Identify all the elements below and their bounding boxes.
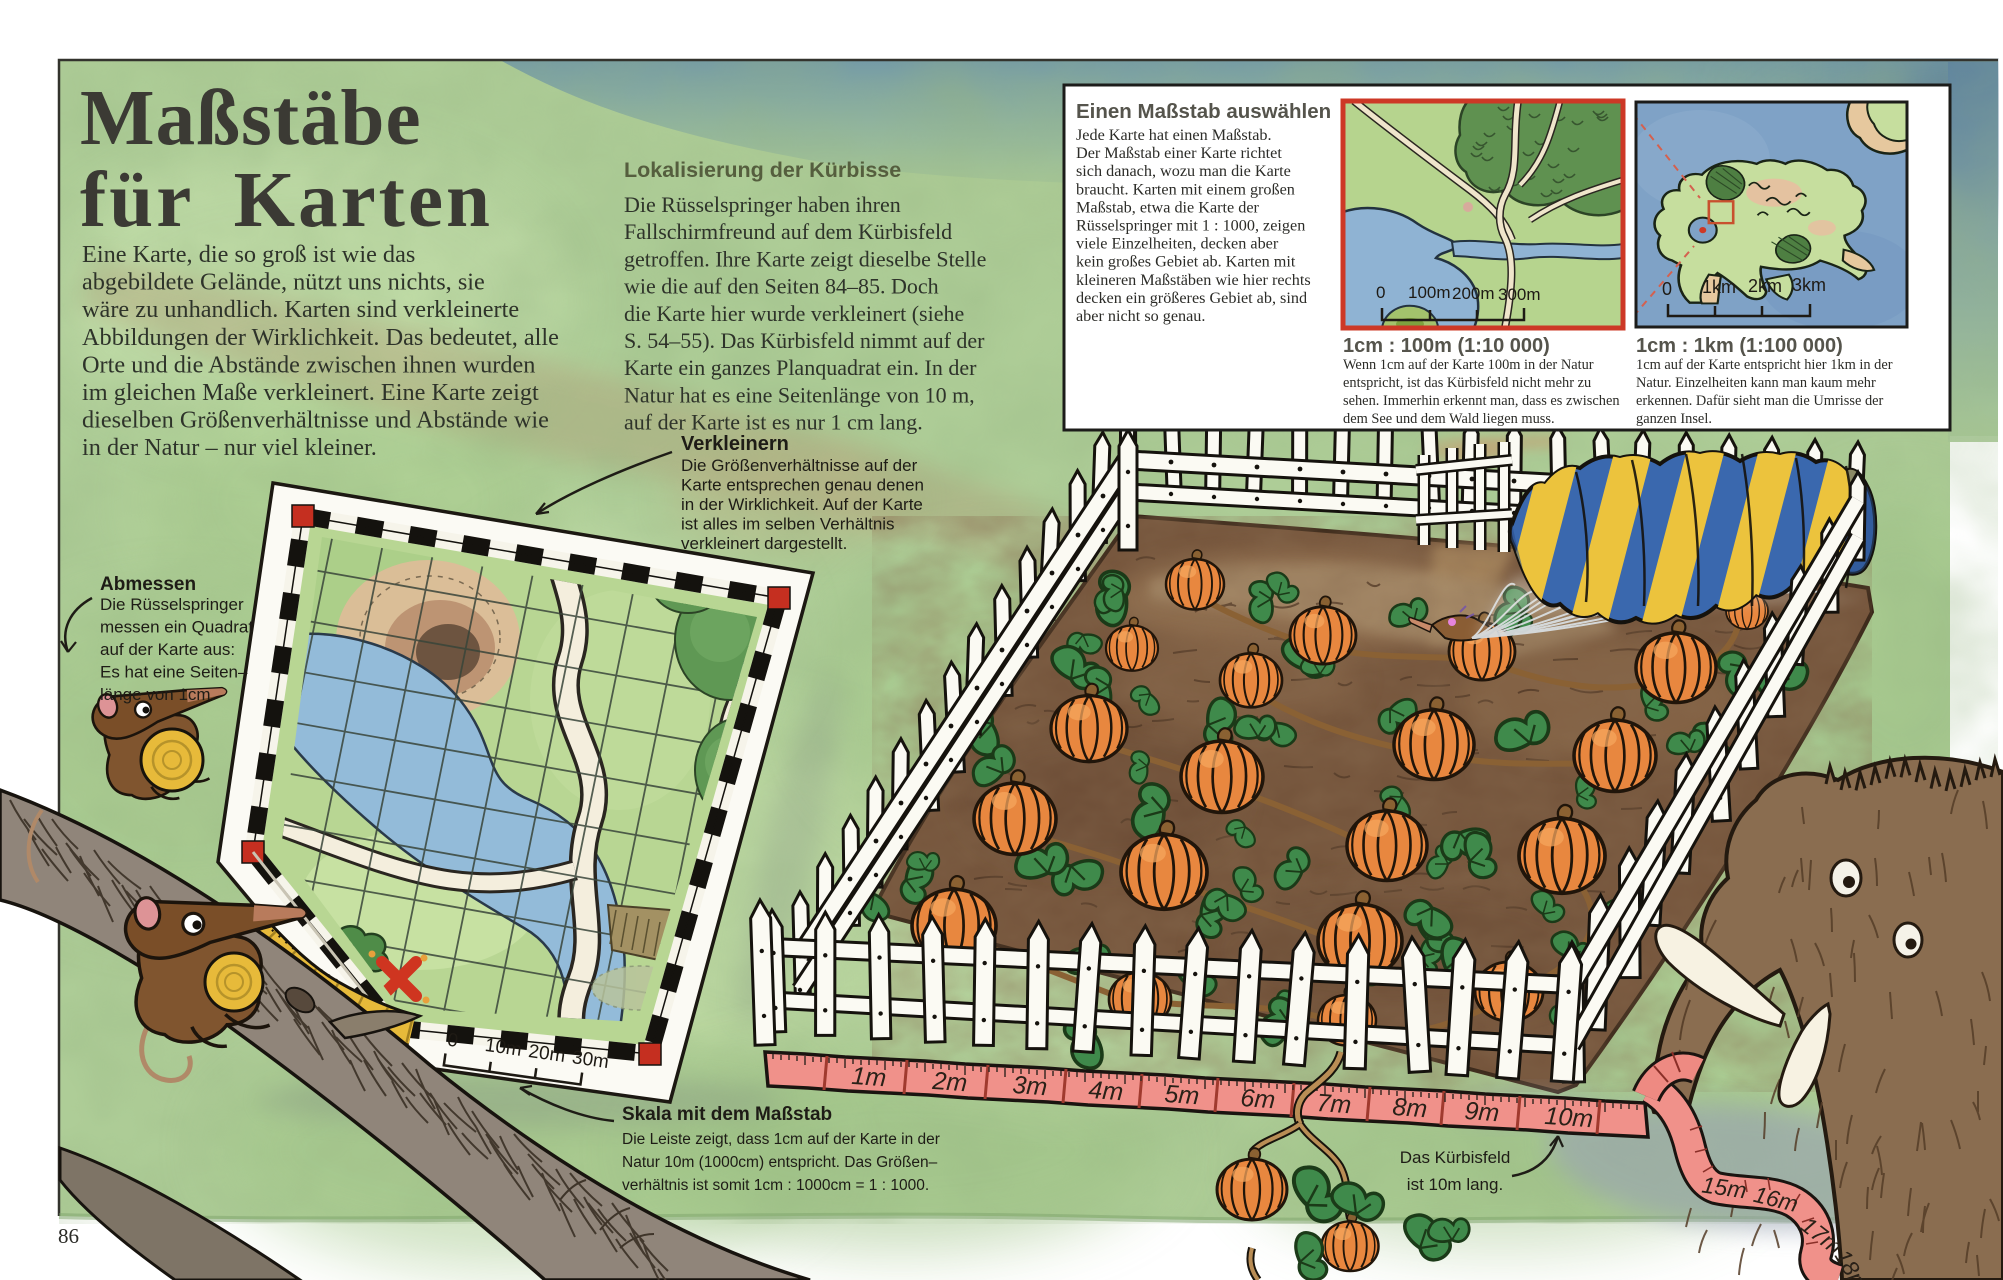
svg-text:4m: 4m xyxy=(1088,1076,1125,1106)
svg-text:300m: 300m xyxy=(1498,285,1541,304)
svg-text:1km: 1km xyxy=(1702,277,1736,297)
svg-text:7m: 7m xyxy=(1316,1089,1353,1119)
svg-text:2m: 2m xyxy=(931,1067,969,1097)
svg-text:für Karten: für Karten xyxy=(80,157,493,244)
svg-text:Die Leiste zeigt, dass 1cm auf: Die Leiste zeigt, dass 1cm auf der Karte… xyxy=(622,1131,940,1194)
svg-text:Skala mit dem Maßstab: Skala mit dem Maßstab xyxy=(622,1104,832,1125)
svg-text:Lokalisierung der Kürbisse: Lokalisierung der Kürbisse xyxy=(624,158,901,182)
svg-text:Abmessen: Abmessen xyxy=(100,574,196,595)
svg-text:10m: 10m xyxy=(1544,1102,1594,1133)
svg-text:1cm : 100m (1:10 000): 1cm : 100m (1:10 000) xyxy=(1343,335,1550,357)
svg-text:0: 0 xyxy=(1376,283,1385,302)
svg-text:200m: 200m xyxy=(1452,284,1495,303)
svg-text:86: 86 xyxy=(58,1224,79,1248)
svg-text:0: 0 xyxy=(1662,279,1672,299)
svg-text:1m: 1m xyxy=(851,1062,888,1092)
svg-text:6m: 6m xyxy=(1240,1084,1277,1114)
svg-text:2km: 2km xyxy=(1748,276,1782,296)
svg-text:1cm : 1km (1:100 000): 1cm : 1km (1:100 000) xyxy=(1636,335,1843,357)
svg-text:5m: 5m xyxy=(1164,1080,1201,1110)
svg-text:3km: 3km xyxy=(1792,275,1826,295)
svg-text:8m: 8m xyxy=(1392,1093,1429,1123)
svg-text:Jede Karte hat einen Maßstab.D: Jede Karte hat einen Maßstab.Der Maßstab… xyxy=(1076,126,1311,325)
svg-text:Die Rüsselspringer haben ihren: Die Rüsselspringer haben ihrenFallschirm… xyxy=(624,192,986,435)
svg-text:3m: 3m xyxy=(1012,1071,1049,1101)
svg-text:Einen Maßstab auswählen: Einen Maßstab auswählen xyxy=(1076,100,1331,123)
svg-text:9m: 9m xyxy=(1464,1097,1501,1127)
svg-text:Maßstäbe: Maßstäbe xyxy=(80,75,422,162)
svg-text:Verkleinern: Verkleinern xyxy=(681,433,789,455)
svg-text:100m: 100m xyxy=(1408,283,1451,302)
